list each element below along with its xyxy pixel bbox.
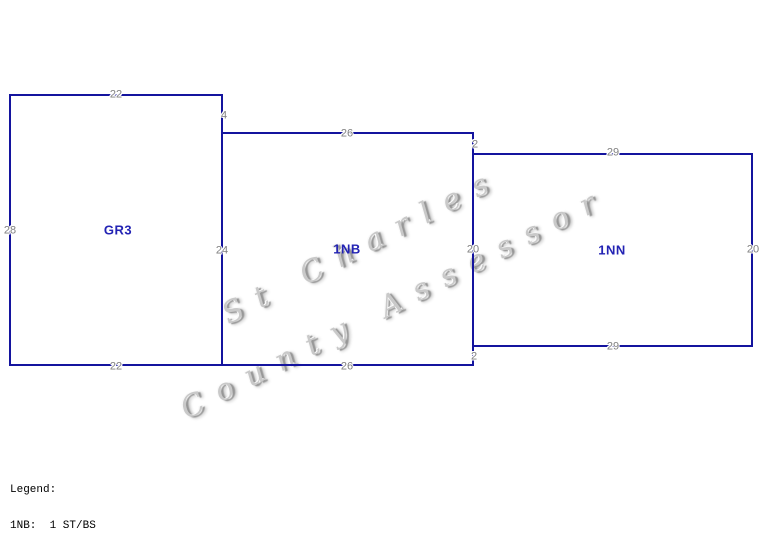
legend: Legend: 1NB:1 ST/BS 1NN:1 ST BSA:BASEMEN… [10,460,149,537]
dimension-label: 22 [110,362,122,373]
dimension-label: 20 [467,245,479,256]
legend-value: 1 ST/BS [50,520,96,532]
dimension-label: 4 [221,111,227,122]
dimension-label: 29 [607,342,619,353]
legend-row: 1NB:1 ST/BS [10,520,149,532]
area-label-1nb: 1NB [333,242,361,257]
dimension-label: 29 [607,148,619,159]
dimension-label: 22 [110,90,122,101]
dimension-label: 28 [4,226,16,237]
dimension-label: 24 [216,246,228,257]
dimension-label: 20 [747,245,759,256]
area-label-gr3: GR3 [104,223,132,238]
legend-key: 1NB: [10,520,50,532]
dimension-label: 26 [341,129,353,140]
dimension-label: 2 [471,352,477,363]
legend-title: Legend: [10,484,149,496]
area-label-1nn: 1NN [598,243,626,258]
dimension-label: 2 [472,140,478,151]
dimension-label: 26 [341,362,353,373]
sketch-canvas: St Charles County Assessor GR31NB1NN2242… [0,0,762,537]
